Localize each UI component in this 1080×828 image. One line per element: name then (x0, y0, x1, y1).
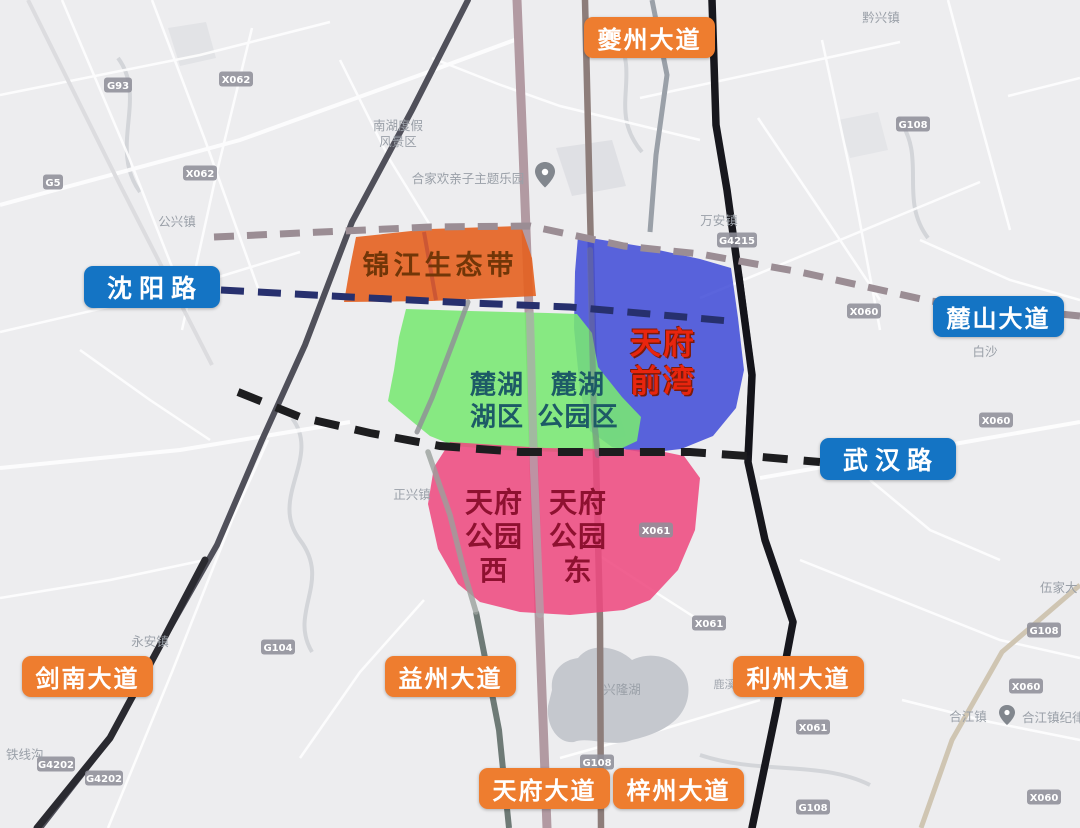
region-label-line: 天府 (465, 486, 523, 520)
region-label-jinjiang: 锦江生态带 (363, 251, 518, 284)
region-label-line: 西 (465, 554, 523, 588)
region-label-qianwan: 天府 前湾 (630, 326, 696, 402)
road-label-yizhou-avenue: 益州大道 (385, 656, 516, 697)
region-label-line: 公园 (549, 520, 607, 554)
region-label-luhu-lake: 麓湖 湖区 (470, 370, 524, 433)
road-label-jiannan-avenue: 剑南大道 (22, 656, 153, 697)
region-label-line: 前湾 (630, 364, 696, 402)
region-label-luhu-park: 麓湖 公园区 (537, 370, 618, 433)
region-label-line: 天府 (549, 486, 607, 520)
region-label-line: 东 (549, 554, 607, 588)
label-overlay: 锦江生态带 天府 前湾 麓湖 湖区 麓湖 公园区 天府 公园 西 天府 公园 东… (0, 0, 1080, 828)
road-label-tianfu-avenue: 天府大道 (479, 768, 610, 809)
region-label-line: 天府 (630, 326, 696, 364)
road-label-kuizhou-avenue: 夔州大道 (584, 17, 715, 58)
region-label-line: 麓湖 (470, 370, 524, 402)
region-label-text: 锦江生态带 (363, 251, 518, 282)
region-label-line: 公园区 (537, 402, 618, 434)
road-label-wuhan-road: 武汉路 (820, 438, 956, 480)
road-label-zizhou-avenue: 梓州大道 (613, 768, 744, 809)
region-label-park-west: 天府 公园 西 (465, 486, 523, 588)
road-label-lizhou-avenue: 利州大道 (733, 656, 864, 697)
region-label-line: 公园 (465, 520, 523, 554)
road-label-shenyang-road: 沈阳路 (84, 266, 220, 308)
map-canvas[interactable]: G93 X062 G5 X062 G108 G4215 X060 X060 X0… (0, 0, 1080, 828)
region-label-line: 麓湖 (537, 370, 618, 402)
region-label-line: 湖区 (470, 402, 524, 434)
road-label-lushan-avenue: 麓山大道 (933, 296, 1064, 337)
region-label-park-east: 天府 公园 东 (549, 486, 607, 588)
